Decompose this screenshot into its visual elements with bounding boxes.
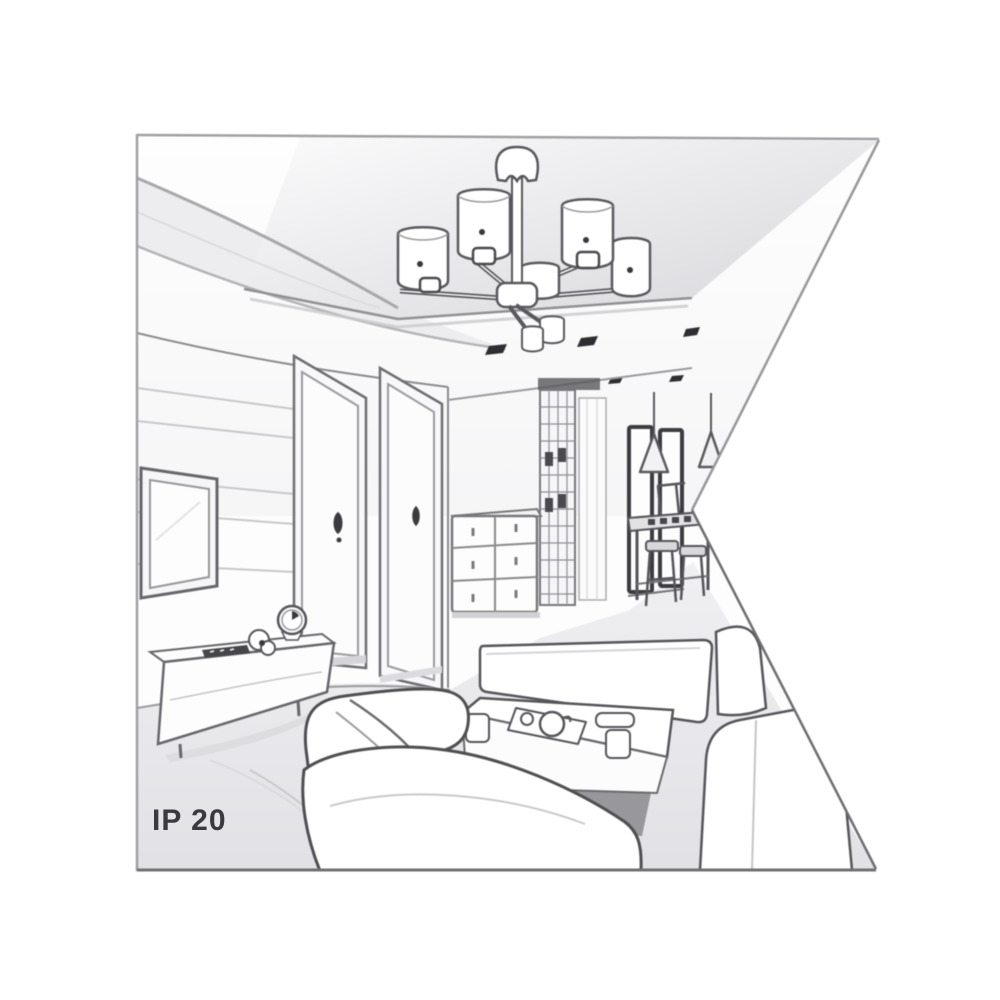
door-right	[380, 368, 442, 690]
chandelier-stem	[512, 178, 522, 286]
room-line-drawing	[0, 0, 1000, 1000]
wardrobe	[540, 390, 575, 605]
chandelier-hub	[497, 283, 537, 307]
chest-of-drawers	[452, 509, 541, 618]
tv	[141, 468, 217, 598]
table-item	[596, 713, 634, 727]
interior-sketch-image: IP 20	[0, 0, 1000, 1000]
ceiling-canopy	[496, 147, 538, 181]
ip-rating-label: IP 20	[152, 804, 227, 838]
hall-panel	[579, 398, 606, 600]
cup	[606, 730, 630, 758]
corner-sofa	[700, 627, 852, 870]
